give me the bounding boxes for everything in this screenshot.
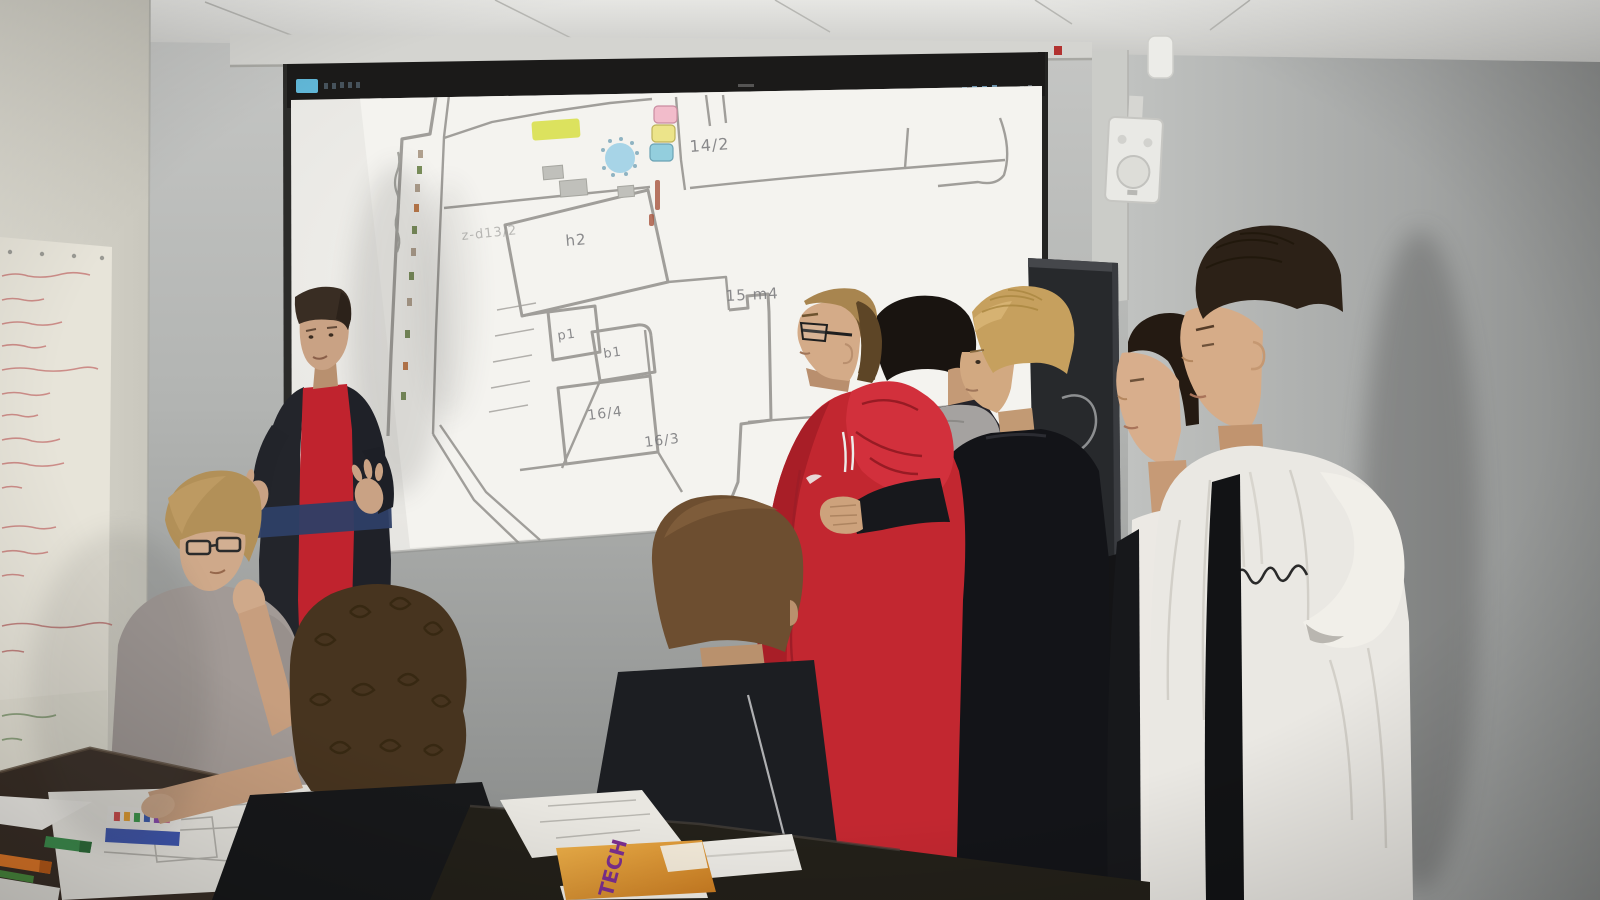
vignette — [0, 0, 1600, 900]
classroom-photo: 14/2 h2 15 m4 p1 b1 16/4 16/3 z-d13/2 — [0, 0, 1600, 900]
